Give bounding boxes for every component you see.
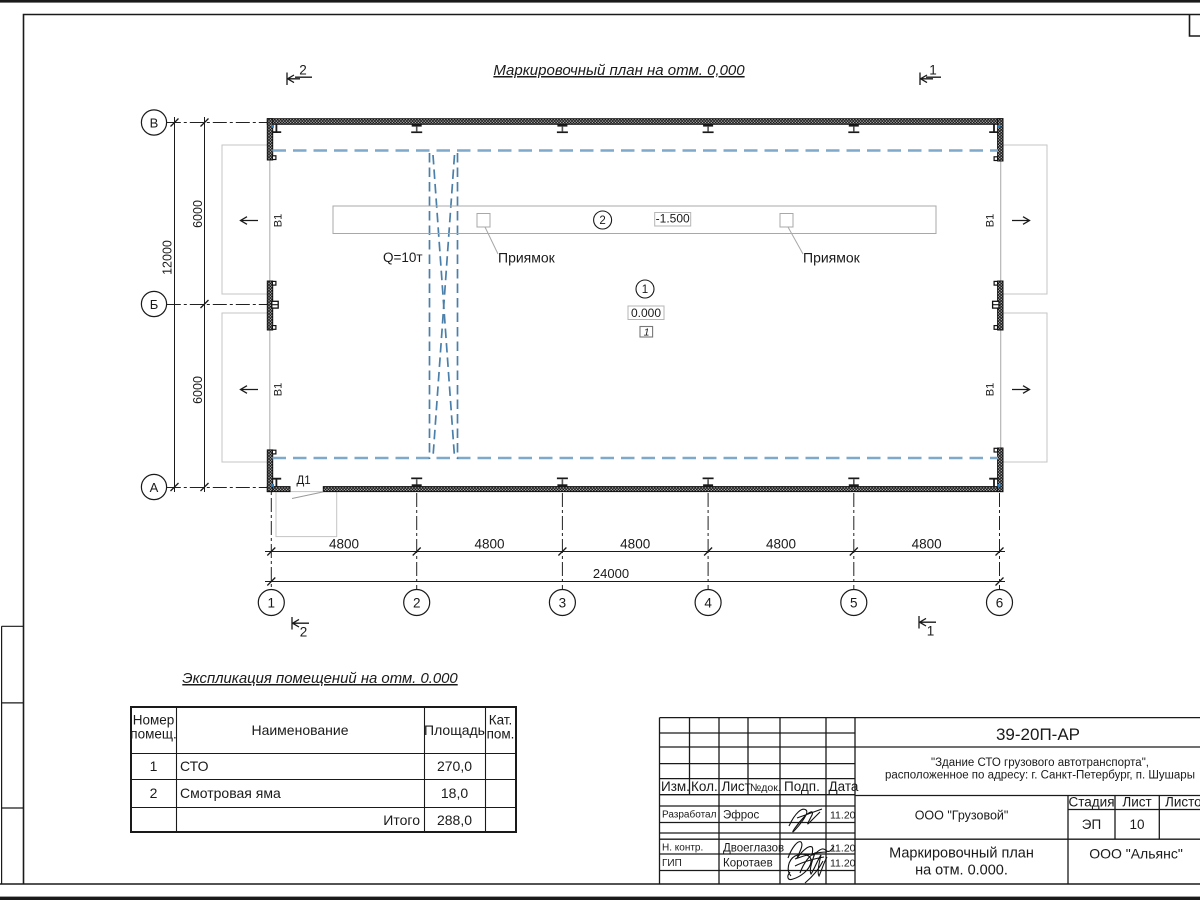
svg-text:6000: 6000 — [191, 376, 205, 404]
svg-text:288,0: 288,0 — [437, 812, 472, 828]
svg-text:Смотровая яма: Смотровая яма — [180, 785, 281, 801]
svg-text:В1: В1 — [273, 214, 285, 227]
svg-text:1: 1 — [644, 327, 650, 339]
svg-text:Изм.: Изм. — [661, 779, 690, 794]
svg-text:2: 2 — [300, 625, 308, 640]
svg-text:Маркировочный план: Маркировочный план — [889, 846, 1034, 862]
svg-text:4800: 4800 — [766, 537, 796, 552]
svg-text:Экспликация помещений на отм.: Экспликация помещений на отм. 0.000 — [182, 671, 458, 687]
svg-text:1: 1 — [929, 63, 937, 78]
svg-text:11.20: 11.20 — [830, 843, 856, 855]
svg-text:6: 6 — [996, 595, 1004, 610]
svg-text:Двоеглазов: Двоеглазов — [723, 843, 784, 855]
svg-text:Итого: Итого — [383, 812, 420, 828]
svg-text:Наименование: Наименование — [251, 722, 348, 738]
svg-text:Номер: Номер — [133, 713, 175, 728]
svg-text:18,0: 18,0 — [441, 785, 468, 801]
svg-text:5: 5 — [850, 595, 858, 610]
svg-text:на отм. 0.000.: на отм. 0.000. — [915, 863, 1008, 879]
svg-text:Приямок: Приямок — [803, 250, 861, 266]
svg-text:расположенное по адресу: г. Са: расположенное по адресу: г. Санкт-Петерб… — [885, 770, 1195, 782]
svg-text:2: 2 — [150, 785, 158, 801]
svg-text:2: 2 — [299, 63, 307, 78]
svg-text:Д1: Д1 — [297, 475, 311, 487]
svg-text:В1: В1 — [985, 214, 997, 227]
svg-text:пом.: пом. — [487, 727, 515, 742]
svg-text:Н. контр.: Н. контр. — [662, 843, 703, 854]
svg-text:0.000: 0.000 — [631, 306, 661, 320]
svg-text:В1: В1 — [273, 383, 285, 396]
svg-text:ООО "Грузовой": ООО "Грузовой" — [915, 809, 1009, 823]
svg-text:1: 1 — [927, 624, 935, 639]
svg-text:10: 10 — [1129, 817, 1144, 832]
svg-text:ЭП: ЭП — [1082, 817, 1101, 832]
svg-text:270,0: 270,0 — [437, 758, 472, 774]
svg-text:ГИП: ГИП — [662, 858, 682, 869]
svg-text:11.20: 11.20 — [830, 858, 856, 870]
svg-text:24000: 24000 — [593, 566, 629, 581]
svg-text:Маркировочный план на отм. 0,0: Маркировочный план на отм. 0,000 — [493, 62, 745, 79]
svg-text:3: 3 — [559, 595, 567, 610]
svg-text:Q=10т: Q=10т — [383, 250, 423, 265]
svg-text:4800: 4800 — [620, 537, 650, 552]
svg-text:Эфрос: Эфрос — [723, 810, 760, 822]
svg-text:4800: 4800 — [474, 537, 504, 552]
svg-text:-1.500: -1.500 — [656, 212, 690, 226]
svg-text:А: А — [150, 480, 159, 495]
svg-text:Лист: Лист — [722, 779, 751, 794]
svg-text:1: 1 — [642, 284, 648, 296]
svg-text:Кол.: Кол. — [691, 779, 718, 794]
svg-text:Кат.: Кат. — [489, 713, 513, 728]
svg-text:Лист: Лист — [1122, 795, 1151, 810]
svg-text:1: 1 — [150, 758, 158, 774]
svg-text:Дата: Дата — [829, 779, 859, 794]
svg-text:39-20П-АР: 39-20П-АР — [996, 725, 1080, 744]
svg-text:Стадия: Стадия — [1068, 795, 1114, 810]
svg-text:Коротаев: Коротаев — [723, 858, 773, 870]
svg-text:СТО: СТО — [180, 758, 209, 774]
svg-text:2: 2 — [413, 595, 421, 610]
svg-text:4800: 4800 — [329, 537, 359, 552]
svg-text:1: 1 — [268, 595, 276, 610]
svg-text:Подп.: Подп. — [784, 779, 820, 794]
svg-text:11.20: 11.20 — [830, 810, 856, 822]
svg-text:ООО "Альянс": ООО "Альянс" — [1089, 846, 1183, 862]
svg-text:Разработал: Разработал — [662, 809, 717, 821]
svg-text:помещ.: помещ. — [130, 727, 176, 742]
svg-text:№док.: №док. — [750, 782, 781, 794]
svg-text:12000: 12000 — [161, 240, 175, 275]
svg-text:"Здание СТО грузового автотран: "Здание СТО грузового автотранспорта", — [931, 757, 1149, 769]
svg-text:Приямок: Приямок — [498, 250, 556, 266]
svg-text:Площадь: Площадь — [424, 722, 485, 738]
svg-text:Б: Б — [150, 297, 159, 312]
svg-text:В1: В1 — [985, 383, 997, 396]
svg-text:В: В — [150, 115, 159, 130]
svg-text:4800: 4800 — [912, 537, 942, 552]
svg-text:Листов: Листов — [1165, 795, 1200, 810]
svg-text:2: 2 — [599, 215, 605, 227]
svg-text:6000: 6000 — [191, 200, 205, 228]
svg-text:4: 4 — [704, 595, 712, 610]
